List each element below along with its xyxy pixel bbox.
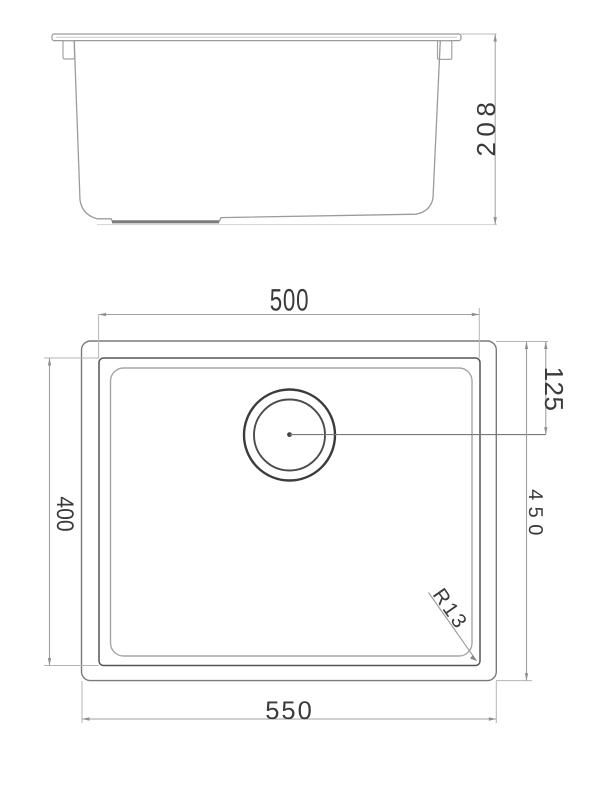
svg-text:400: 400 <box>51 496 78 531</box>
svg-text:125: 125 <box>539 367 569 412</box>
svg-text:R13: R13 <box>428 584 473 634</box>
svg-text:500: 500 <box>270 283 309 318</box>
svg-text:208: 208 <box>471 97 501 157</box>
svg-text:550: 550 <box>265 697 314 725</box>
svg-text:450: 450 <box>524 489 546 542</box>
